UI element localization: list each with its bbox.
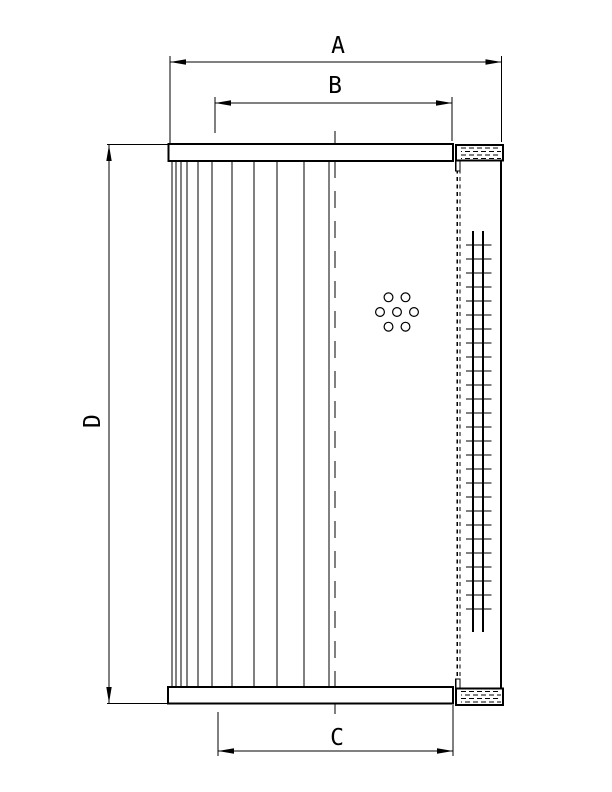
drawing-page: A B C D	[0, 0, 612, 792]
dimension-arrowhead	[215, 100, 231, 105]
perforation-hole	[410, 308, 419, 317]
drawing-geometry	[106, 56, 503, 756]
perforation-hole	[384, 322, 393, 331]
dim-label-d: D	[80, 414, 106, 428]
front-top-end-cap	[169, 144, 454, 161]
dim-label-a: A	[331, 33, 345, 59]
dimension-arrowhead	[437, 748, 453, 753]
side-top-end-cap	[456, 145, 503, 161]
dim-label-b: B	[328, 73, 342, 99]
front-view	[168, 131, 453, 714]
dimension-d	[106, 145, 168, 704]
side-view	[456, 145, 503, 705]
perforation-hole	[393, 308, 402, 317]
dimension-b	[215, 97, 452, 141]
filter-element-technical-drawing: A B C D	[0, 0, 612, 792]
perforation-hole	[376, 308, 385, 317]
side-bottom-end-cap	[456, 689, 503, 706]
dimension-arrowhead	[218, 748, 234, 753]
dimension-arrowhead	[106, 145, 111, 161]
perforation-holes	[376, 293, 419, 331]
perforation-hole	[401, 322, 410, 331]
perforation-hole	[384, 293, 393, 302]
dim-label-c: C	[330, 725, 344, 751]
front-bottom-end-cap	[168, 687, 453, 704]
dimension-arrowhead	[486, 59, 502, 64]
dimension-arrowhead	[106, 687, 111, 703]
dimension-arrowhead	[436, 100, 452, 105]
dimension-arrowhead	[170, 59, 186, 64]
perforation-hole	[401, 293, 410, 302]
